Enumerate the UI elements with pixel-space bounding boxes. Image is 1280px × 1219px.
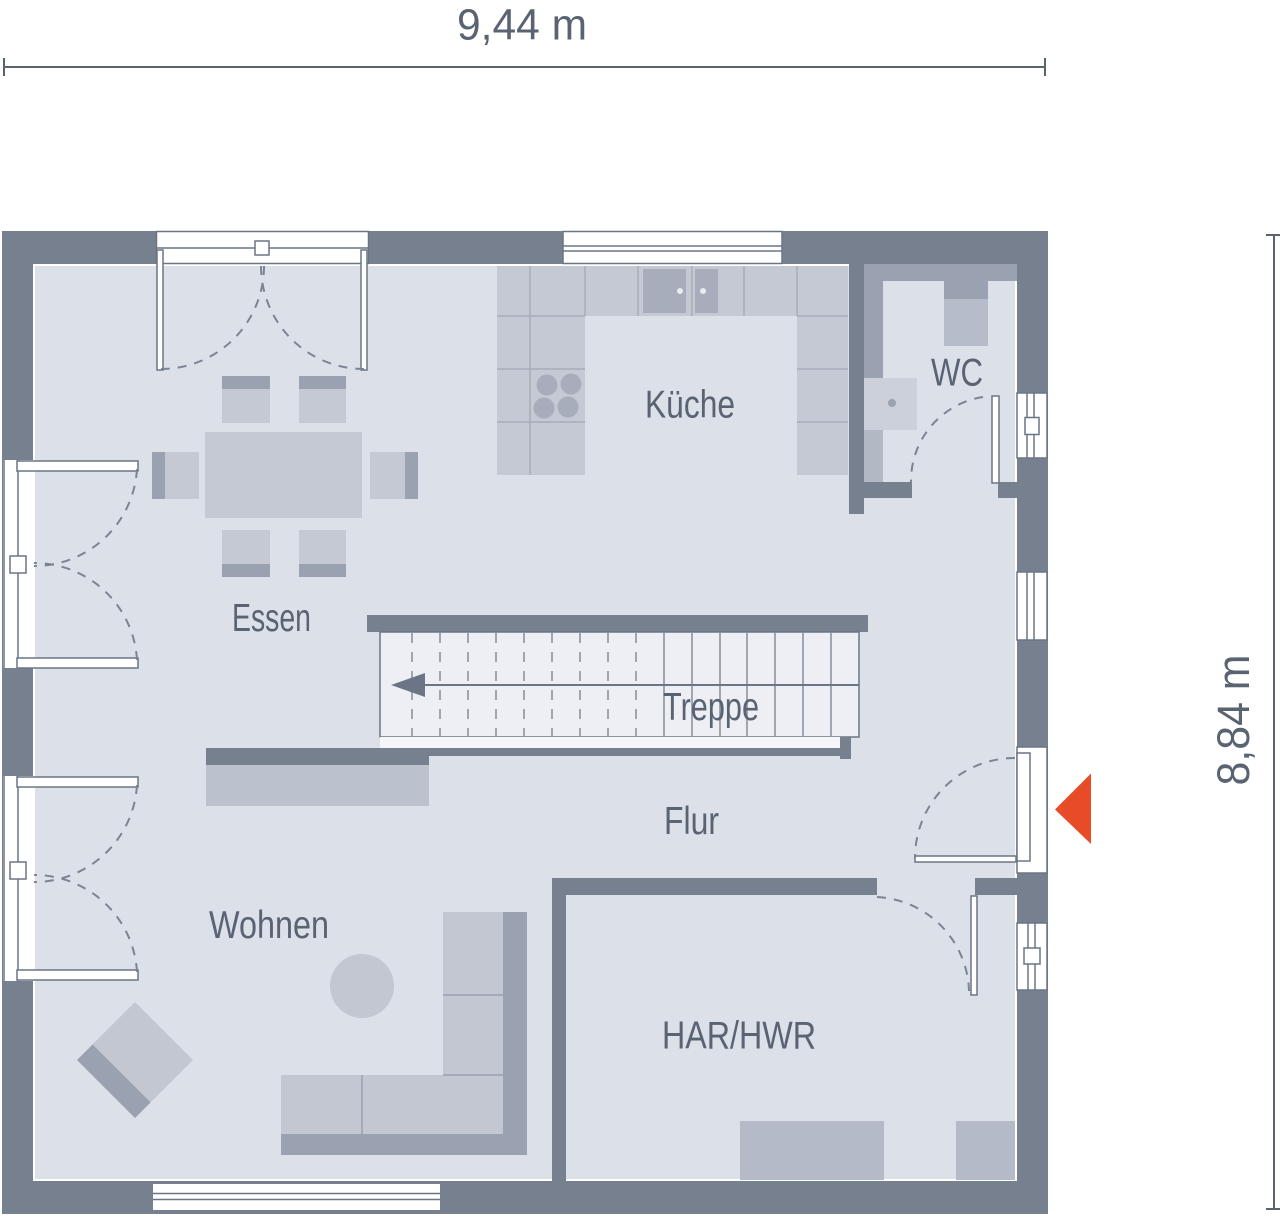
svg-text:Flur: Flur	[664, 800, 719, 843]
svg-text:Wohnen: Wohnen	[209, 904, 329, 947]
svg-text:Küche: Küche	[645, 384, 735, 427]
svg-text:Treppe: Treppe	[663, 686, 759, 729]
svg-text:HAR/HWR: HAR/HWR	[662, 1015, 816, 1058]
svg-text:8,84 m: 8,84 m	[1208, 655, 1259, 786]
svg-text:Essen: Essen	[232, 597, 311, 640]
svg-text:WC: WC	[931, 352, 983, 395]
svg-text:9,44 m: 9,44 m	[457, 1, 587, 50]
